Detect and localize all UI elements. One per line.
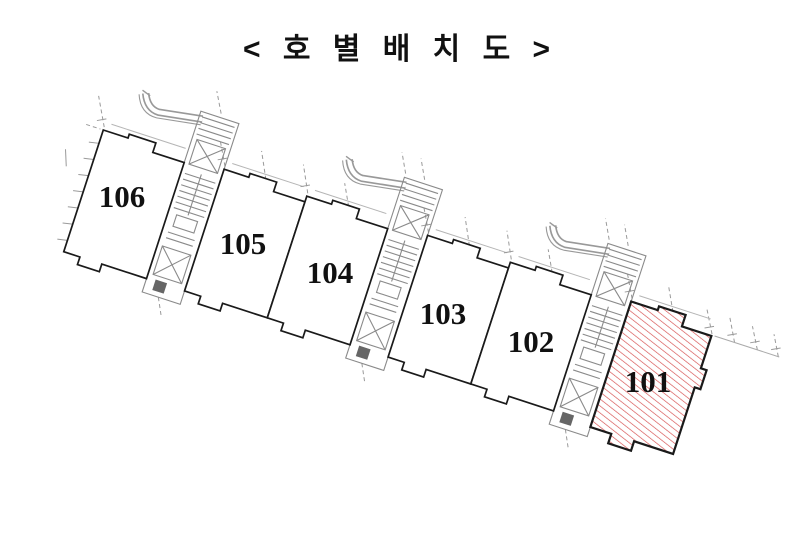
unit-label-103: 103 — [420, 296, 467, 331]
unit-label-104: 104 — [307, 255, 354, 290]
floor-plan-page: < 호 별 배 치 도 > — [0, 0, 800, 546]
unit-label-105: 105 — [220, 226, 267, 261]
unit-label-102: 102 — [508, 324, 555, 359]
unit-label-101-highlighted: 101 — [625, 364, 672, 399]
unit-label-106: 106 — [99, 179, 146, 214]
site-plan-drawing: 106 105 104 103 102 101 — [0, 0, 800, 546]
unit-outlines — [59, 126, 720, 465]
